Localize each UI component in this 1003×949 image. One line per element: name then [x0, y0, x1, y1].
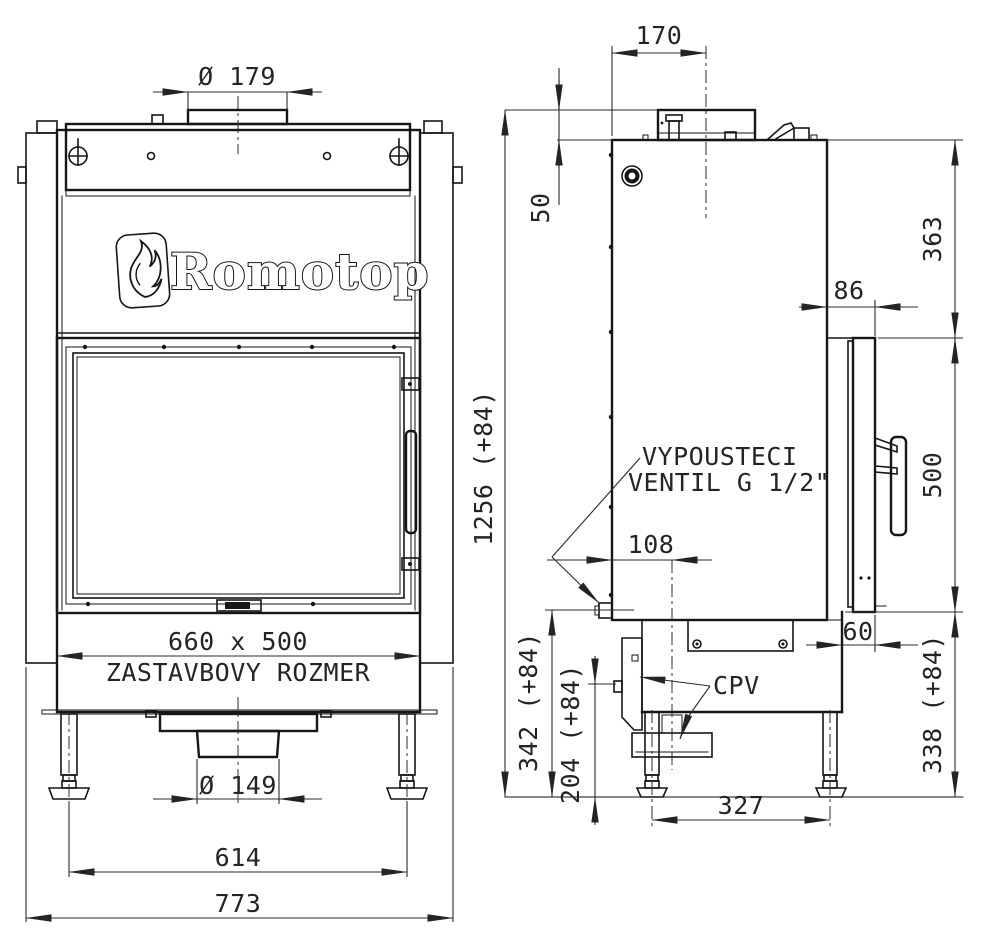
front-bracket-left [18, 121, 57, 663]
side-collar-height-label: 50 [526, 192, 555, 223]
cpv-label: CPV [713, 671, 760, 700]
bolt-icon-left [69, 139, 87, 165]
side-door-offset-label: 86 [833, 276, 864, 305]
drain-valve-label-line1: VYPOUSTECI [642, 442, 798, 471]
front-opening-name-label: ZASTAVBOVY ROZMER [106, 658, 371, 687]
front-outlet-diameter-label: Ø 149 [199, 771, 277, 800]
side-top-section-label: 363 [918, 216, 947, 263]
side-flue-collar [505, 110, 755, 140]
side-base-height-label: 338 (+84) [918, 634, 947, 774]
front-view: Romotop [18, 62, 462, 922]
damper-lever-icon [767, 123, 817, 140]
front-overall-width-label: 773 [215, 889, 262, 918]
cpv-valve-body [614, 638, 712, 757]
side-valve-offset-label: 108 [628, 530, 675, 559]
side-flue-offset-label: 170 [636, 21, 683, 50]
side-feet-spacing-label: 327 [718, 791, 765, 820]
bolt-icon-right [390, 139, 408, 165]
foot-side-rear [816, 775, 846, 797]
front-flue-diameter-label: Ø 179 [198, 62, 276, 91]
romotop-logo: Romotop [115, 232, 429, 308]
side-cpv-height-label: 204 (+84) [556, 664, 585, 804]
side-overall-height-label: 1256 (+84) [469, 390, 498, 546]
front-feet-spacing-label: 614 [215, 843, 262, 872]
side-door [827, 338, 906, 612]
front-bracket-right [420, 121, 462, 663]
brand-logo-text: Romotop [170, 242, 430, 301]
front-base [42, 96, 437, 810]
side-valve-height-label: 342 (+84) [514, 632, 543, 772]
side-step-label: 60 [842, 617, 873, 646]
technical-drawing-canvas: Romotop [0, 0, 1003, 949]
front-door [57, 338, 420, 613]
flame-icon [115, 232, 170, 308]
side-door-height-label: 500 [918, 452, 947, 499]
front-body [57, 110, 420, 712]
panel-hole-right [324, 153, 331, 160]
door-latch [217, 600, 261, 611]
drain-valve-label-line2: VENTIL G 1/2" [628, 468, 830, 497]
side-dimensions: 170 50 1256 (+84) 363 500 338 (+84) [469, 21, 963, 825]
air-intake-icon [622, 166, 642, 186]
fireplace-technical-drawing: Romotop [0, 0, 1003, 949]
side-view: 170 50 1256 (+84) 363 500 338 (+84) [469, 21, 963, 830]
panel-hole-left [148, 153, 155, 160]
front-opening-size-label: 660 x 500 [168, 627, 308, 656]
door-handle-side [875, 437, 906, 535]
